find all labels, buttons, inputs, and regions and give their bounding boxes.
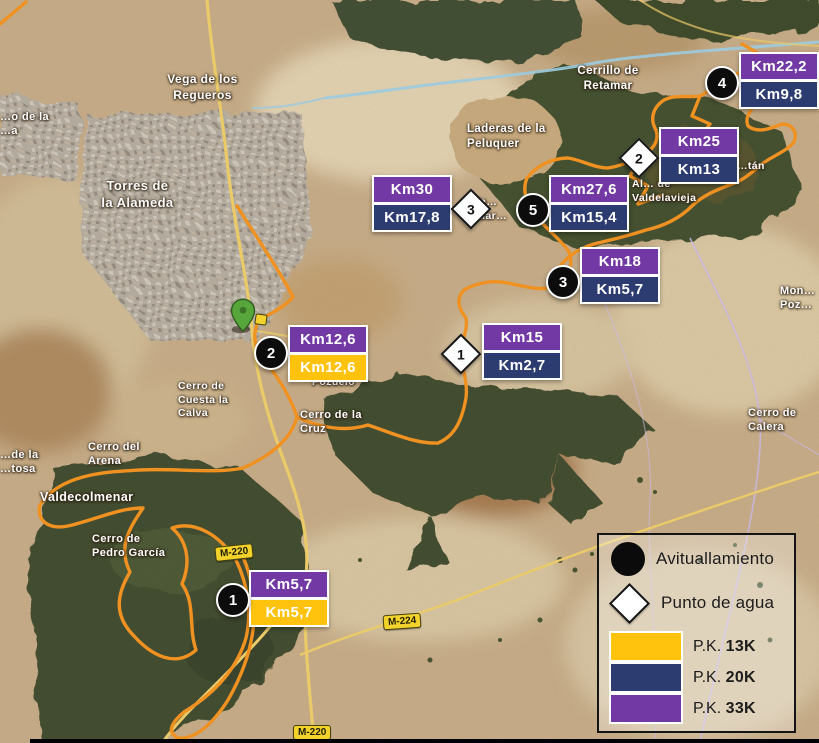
water-point-legend-icon xyxy=(609,582,650,623)
small-road-shield-fragment xyxy=(254,313,267,326)
aid-station-number: 1 xyxy=(229,592,237,609)
place-label-fragment-nw: …o de la …a xyxy=(0,110,49,139)
km-chip: Km30 xyxy=(372,175,452,204)
place-label-torres: Torres de la Alameda xyxy=(80,178,195,212)
legend: Avituallamiento Punto de agua P.K. 13K P… xyxy=(597,533,796,733)
place-label-cruz: Cerro de la Cruz xyxy=(300,408,362,437)
place-label-valdecolmenar: Valdecolmenar xyxy=(40,489,133,505)
aid-station-number: 4 xyxy=(718,75,726,92)
pk33-label: P.K. 33K xyxy=(693,700,756,718)
km-chips-water2: Km25 Km13 xyxy=(659,127,739,184)
water-point-legend-label: Punto de agua xyxy=(661,593,774,613)
water-point-number: 2 xyxy=(635,150,643,166)
km-chip: Km5,7 xyxy=(580,275,660,304)
km-chips-aid5: Km27,6 Km15,4 xyxy=(549,175,629,232)
aid-station-legend-label: Avituallamiento xyxy=(656,549,774,569)
km-chip: Km17,8 xyxy=(372,203,452,232)
km-chips-water1: Km15 Km2,7 xyxy=(482,323,562,380)
pk13-swatch xyxy=(609,631,683,662)
road-shield-m224: M-224 xyxy=(383,613,422,631)
km-chip: Km2,7 xyxy=(482,351,562,380)
km-chips-aid1: Km5,7 Km5,7 xyxy=(249,570,329,627)
start-pin-icon[interactable] xyxy=(230,298,256,339)
km-chip: Km27,6 xyxy=(549,175,629,204)
pk13-label: P.K. 13K xyxy=(693,638,756,656)
place-label-calera: Cerro de Calera xyxy=(748,406,796,435)
race-map: Vega de los Regueros Torres de la Alamed… xyxy=(0,0,819,743)
aid-station-number: 3 xyxy=(559,274,567,291)
km-chips-aid2: Km12,6 Km12,6 xyxy=(288,325,368,382)
pk20-swatch xyxy=(609,662,683,693)
aid-station-marker-1[interactable]: 1 xyxy=(216,583,250,617)
km-chip: Km5,7 xyxy=(249,570,329,599)
place-label-cerrillo: Cerrillo de Retamar xyxy=(548,64,668,94)
km-chips-aid3: Km18 Km5,7 xyxy=(580,247,660,304)
aid-station-number: 2 xyxy=(267,345,275,362)
place-label-pedro-garcia: Cerro de Pedro García xyxy=(92,532,165,561)
km-chip: Km5,7 xyxy=(249,598,329,627)
aid-station-marker-2[interactable]: 2 xyxy=(254,336,288,370)
pk20-label: P.K. 20K xyxy=(693,669,756,687)
aid-station-number: 5 xyxy=(529,202,537,219)
aid-station-marker-5[interactable]: 5 xyxy=(516,193,550,227)
km-chips-water3: Km30 Km17,8 xyxy=(372,175,452,232)
place-label-cuesta-calva: Cerro de Cuesta la Calva xyxy=(178,380,228,421)
water-point-number: 1 xyxy=(457,346,465,362)
km-chips-aid4: Km22,2 Km9,8 xyxy=(739,52,819,109)
place-label-laderas: Laderas de la Peluquer xyxy=(467,122,546,152)
km-chip: Km15,4 xyxy=(549,203,629,232)
place-label-arena: Cerro del Arena xyxy=(88,440,140,469)
place-label-mon-poz: Mon… Poz… xyxy=(780,284,815,313)
place-label-tan-fragment: …tán xyxy=(737,160,765,174)
km-chip: Km12,6 xyxy=(288,325,368,354)
km-chip: Km15 xyxy=(482,323,562,352)
bottom-bar xyxy=(30,739,819,743)
aid-station-marker-3[interactable]: 3 xyxy=(546,265,580,299)
aid-station-marker-4[interactable]: 4 xyxy=(705,66,739,100)
pk33-swatch xyxy=(609,693,683,724)
road-shield-m220-south: M-220 xyxy=(293,725,331,740)
km-chip: Km18 xyxy=(580,247,660,276)
place-label-fragment-w: …de la …tosa xyxy=(0,448,38,477)
aid-station-legend-icon xyxy=(611,542,645,576)
km-chip: Km9,8 xyxy=(739,80,819,109)
km-chip: Km13 xyxy=(659,155,739,184)
water-point-number: 3 xyxy=(467,201,475,217)
km-chip: Km22,2 xyxy=(739,52,819,81)
km-chip: Km12,6 xyxy=(288,353,368,382)
place-label-vega: Vega de los Regueros xyxy=(145,72,260,103)
km-chip: Km25 xyxy=(659,127,739,156)
